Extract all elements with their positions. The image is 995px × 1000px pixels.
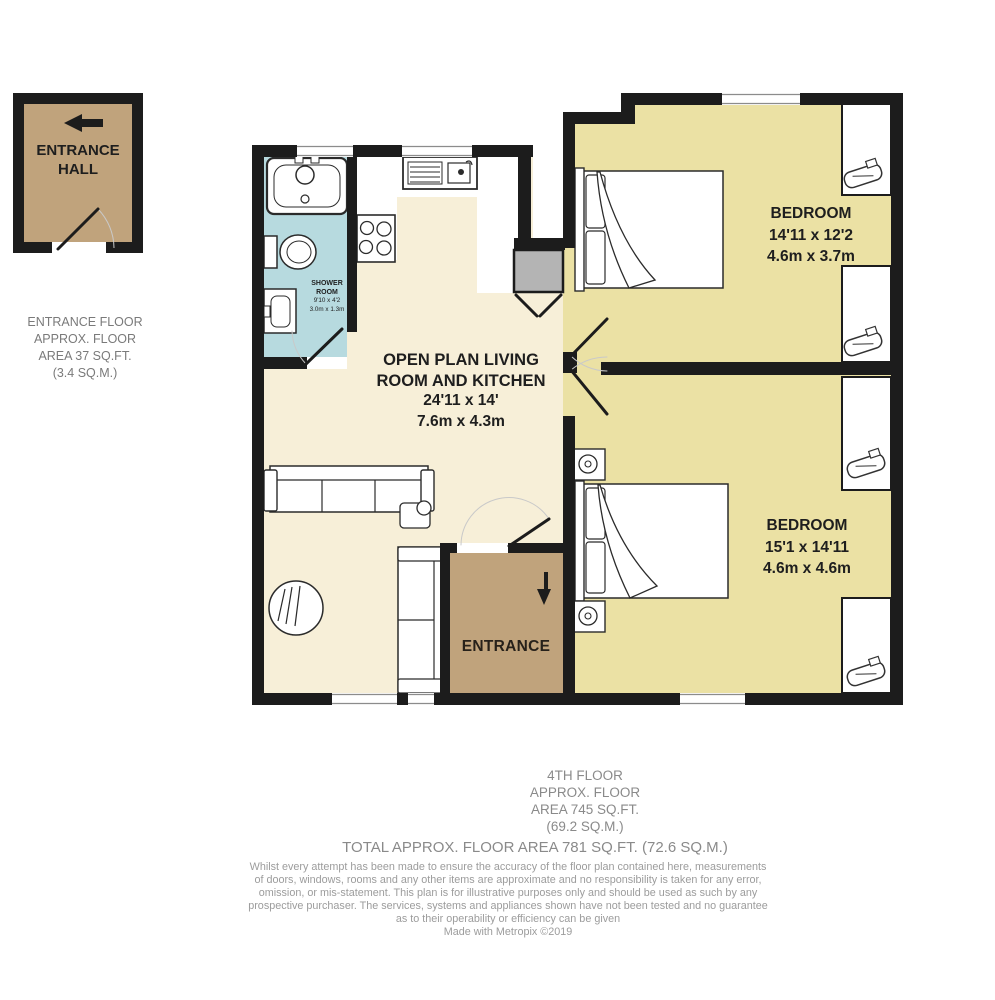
hob-icon: [357, 215, 395, 262]
sofa-small: [398, 547, 442, 693]
window: [332, 693, 397, 705]
basin-icon: [264, 289, 296, 333]
entrance-hall-label: ENTRANCE HALL: [36, 141, 119, 179]
entrance-label: ENTRANCE: [462, 638, 551, 656]
entrance-door-gap: [457, 543, 508, 553]
armchair: [269, 581, 323, 635]
floorplan-page: ENTRANCE HALL ENTRANCE FLOOR APPROX. FLO…: [0, 0, 995, 1000]
bed-top: [575, 168, 723, 291]
toilet-icon: [264, 235, 316, 269]
bathtub-icon: [267, 156, 347, 214]
window: [680, 693, 745, 705]
entrance-hall-label-line1: ENTRANCE: [36, 141, 119, 160]
living-room-label: OPEN PLAN LIVING ROOM AND KITCHEN 24'11 …: [377, 350, 546, 432]
kitchen-sink-icon: [403, 157, 477, 189]
entrance-floor-note: ENTRANCE FLOOR APPROX. FLOOR AREA 37 SQ.…: [27, 314, 142, 382]
niches: [841, 99, 891, 693]
metropix-credit: Made with Metropix ©2019: [248, 926, 768, 939]
window: [297, 145, 353, 157]
nightstand: [572, 601, 605, 632]
window: [722, 93, 800, 105]
floor-area-summary: 4TH FLOOR APPROX. FLOOR AREA 745 SQ.FT. …: [530, 767, 640, 835]
bedroom-bottom-label: BEDROOM 15'1 x 14'11 4.6m x 4.6m: [763, 515, 851, 580]
window: [402, 145, 472, 157]
window: [408, 693, 434, 705]
shower-room-label: SHOWER ROOM 9'10 x 4'2 3.0m x 1.3m: [310, 280, 345, 314]
side-table: [400, 501, 431, 528]
total-floor-area: TOTAL APPROX. FLOOR AREA 781 SQ.FT. (72.…: [342, 839, 728, 856]
duct-box: [514, 250, 563, 292]
bedroom-top-label: BEDROOM 14'11 x 12'2 4.6m x 3.7m: [767, 203, 855, 268]
nightstand: [572, 449, 605, 480]
disclaimer-text: Whilst every attempt has been made to en…: [248, 861, 768, 939]
entrance-hall-label-line2: HALL: [36, 160, 119, 179]
